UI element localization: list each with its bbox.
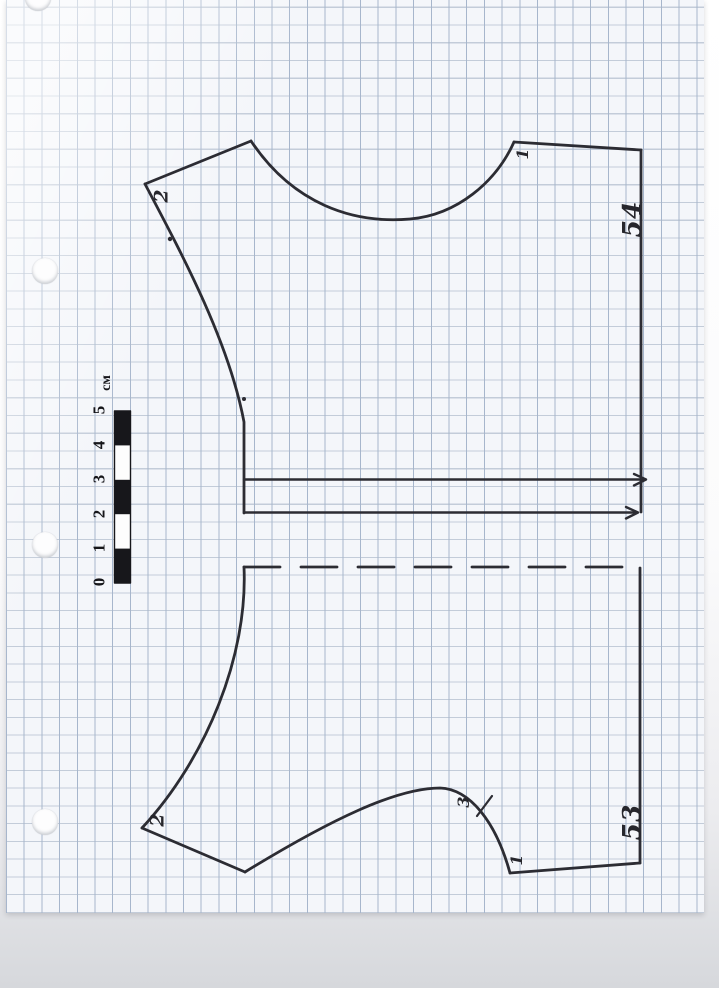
scale-tick-label: 0 <box>91 578 108 587</box>
notch-label: 1 <box>509 854 525 865</box>
notch-label: 3 <box>456 796 472 807</box>
pattern-drawing <box>0 0 719 988</box>
pen-dot <box>168 237 172 241</box>
piece-number-label: 53 <box>620 804 645 841</box>
bottom-piece-shoulder-line <box>142 828 245 872</box>
scale-tick-label: 2 <box>91 510 108 519</box>
scale-bar <box>115 411 131 583</box>
scale-bar-segment-black <box>115 549 131 583</box>
scale-tick-label: 4 <box>91 441 108 450</box>
notch-label: 2 <box>153 189 172 202</box>
bottom-piece-neckline-curve <box>142 567 244 828</box>
notch-label: 1 <box>515 148 531 159</box>
armhole-notch-tick <box>477 796 492 816</box>
top-piece-top-edge <box>514 142 641 150</box>
piece-number-label: 54 <box>620 201 645 238</box>
scale-tick-label: 3 <box>91 475 108 484</box>
pen-dot <box>242 397 246 401</box>
top-piece-left-side-curve <box>145 184 244 513</box>
scale-unit-label: см <box>100 375 114 391</box>
bottom-piece-bottom-edge <box>510 863 640 873</box>
top-piece-shoulder-line <box>145 141 251 184</box>
scale-bar-segment-black <box>115 480 131 514</box>
scale-tick-label: 5 <box>91 406 108 415</box>
scanned-page: 0 1 2 3 4 5 см 2 1 54 2 3 1 53 <box>0 0 719 988</box>
scale-bar-segment-black <box>115 411 131 445</box>
notch-label: 2 <box>149 813 168 826</box>
top-piece-neckline-curve <box>251 141 514 220</box>
scale-tick-label: 1 <box>91 544 108 553</box>
